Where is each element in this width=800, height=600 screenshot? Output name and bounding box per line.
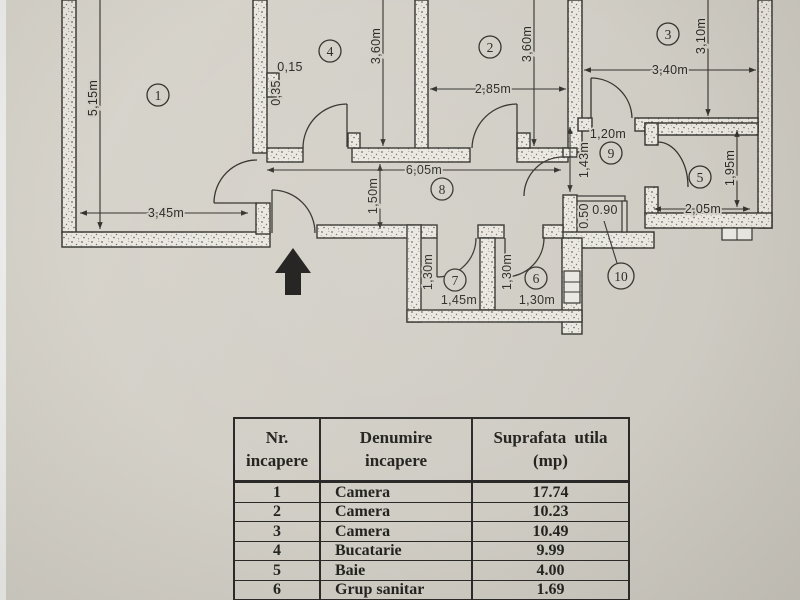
cell-nr: 4 [235, 542, 321, 561]
wall [645, 187, 658, 215]
room-number-10: 10 [608, 263, 634, 289]
entrance-arrow [275, 248, 311, 295]
wall [645, 123, 658, 145]
wall [563, 195, 577, 233]
partition-room9-room10 [577, 196, 625, 201]
room-number-label: 2 [487, 40, 494, 55]
header-line: incapere [365, 450, 427, 472]
header-line: Denumire [360, 427, 432, 449]
cell-suprafata: 10.23 [473, 503, 628, 522]
dim-room6-width: 1,30m [519, 293, 555, 307]
room-number-5: 5 [689, 166, 711, 188]
room-number-2: 2 [479, 36, 501, 58]
dim-wall-035: 0,35 [269, 80, 283, 106]
vent-shaft [564, 271, 580, 303]
surface-table: Nr. incapere Denumire incapere Suprafata… [233, 417, 630, 600]
wall [62, 0, 76, 233]
header-line: (mp) [533, 450, 568, 472]
room-number-label: 5 [697, 170, 704, 185]
wall [253, 0, 267, 153]
cell-suprafata: 1.69 [473, 581, 628, 600]
wall [407, 310, 582, 322]
header-line: Suprafata utila [493, 427, 607, 449]
cell-nr: 2 [235, 503, 321, 522]
wall [645, 123, 758, 135]
wall [543, 225, 563, 238]
room-number-6: 6 [525, 267, 547, 289]
wall [758, 0, 772, 228]
dim-room7-width: 1,45m [441, 293, 477, 307]
cell-denumire: Grup sanitar [321, 581, 473, 600]
dim-room10-width: 0.90 [592, 203, 618, 217]
room-number-label: 9 [608, 146, 615, 161]
table-row: 1 Camera 17.74 [235, 482, 628, 502]
cell-denumire: Baie [321, 561, 473, 580]
dim-room5-width: 2,05m [685, 202, 721, 216]
header-line: incapere [246, 450, 308, 472]
room-number-label: 7 [452, 273, 459, 288]
dim-hall-height: 1,50m [366, 178, 380, 214]
wall [415, 0, 428, 162]
dim-room2-height: 3,60m [520, 26, 534, 62]
wall [62, 232, 270, 247]
door-arc-room-5 [658, 142, 688, 187]
room-number-label: 4 [327, 44, 334, 59]
cell-nr: 6 [235, 581, 321, 600]
room-number-label: 3 [665, 27, 672, 42]
wall [256, 203, 270, 234]
wall [317, 225, 421, 238]
dim-room1-height: 5,15m [86, 80, 100, 116]
cell-nr: 5 [235, 561, 321, 580]
wall [480, 238, 495, 310]
dim-room9-height: 1,43m [577, 142, 591, 178]
dim-room4-height: 3,60m [369, 28, 383, 64]
cell-denumire: Bucatarie [321, 542, 473, 561]
dim-room3-height: 3,10m [694, 18, 708, 54]
room-number-7: 7 [444, 269, 466, 291]
table-header-denumire: Denumire incapere [321, 419, 473, 480]
vent-shaft [722, 228, 752, 240]
room-number-3: 3 [657, 23, 679, 45]
cell-nr: 1 [235, 483, 321, 502]
cell-suprafata: 10.49 [473, 522, 628, 541]
dim-room2-width: 2,85m [475, 82, 511, 96]
room-number-label: 6 [533, 271, 540, 286]
header-line: Nr. [266, 427, 289, 449]
door-arc-room-2 [472, 104, 517, 148]
wall [478, 225, 504, 238]
room-number-label: 8 [439, 182, 446, 197]
room-number-8: 8 [431, 178, 453, 200]
door-arc-room-4 [303, 104, 347, 148]
cell-suprafata: 17.74 [473, 483, 628, 502]
room-number-label: 10 [614, 269, 628, 284]
table-header-row: Nr. incapere Denumire incapere Suprafata… [235, 419, 628, 482]
table-row: 2 Camera 10.23 [235, 502, 628, 522]
door-arc-room-1 [214, 160, 257, 203]
partition-room10-right [622, 201, 627, 232]
door-arc-entrance [272, 190, 315, 233]
table-row: 6 Grup sanitar 1.69 [235, 580, 628, 600]
wall [267, 148, 303, 162]
wall [517, 133, 530, 148]
dim-room6-height: 1,30m [500, 254, 514, 290]
cell-suprafata: 9.99 [473, 542, 628, 561]
table-row: 5 Baie 4.00 [235, 560, 628, 580]
door-arc-room-3 [591, 78, 632, 118]
dim-room9-width: 1,20m [590, 127, 626, 141]
wall [421, 225, 437, 238]
dim-room10-depth: 0.50 [577, 203, 591, 229]
cell-nr: 3 [235, 522, 321, 541]
room-number-9: 9 [600, 142, 622, 164]
table-header-nr: Nr. incapere [235, 419, 321, 480]
wall [352, 148, 470, 162]
dim-wall-015: 0,15 [277, 60, 303, 74]
room-number-label: 1 [155, 88, 162, 103]
dim-room7-height: 1,30m [421, 254, 435, 290]
table-row: 4 Bucatarie 9.99 [235, 541, 628, 561]
room-number-1: 1 [147, 84, 169, 106]
cell-suprafata: 4.00 [473, 561, 628, 580]
table-header-suprafata: Suprafata utila (mp) [473, 419, 628, 480]
dim-hall-width: 6,05m [406, 163, 442, 177]
dim-room3-width: 3,40m [652, 63, 688, 77]
dim-room1-width: 3,45m [148, 206, 184, 220]
wall [517, 148, 568, 162]
door-arc-room-9 [524, 157, 563, 196]
cell-denumire: Camera [321, 503, 473, 522]
table-row: 3 Camera 10.49 [235, 521, 628, 541]
cell-denumire: Camera [321, 522, 473, 541]
dim-room5-height: 1,95m [723, 150, 737, 186]
room-number-4: 4 [319, 40, 341, 62]
cell-denumire: Camera [321, 483, 473, 502]
wall [407, 225, 421, 322]
wall [348, 133, 360, 148]
